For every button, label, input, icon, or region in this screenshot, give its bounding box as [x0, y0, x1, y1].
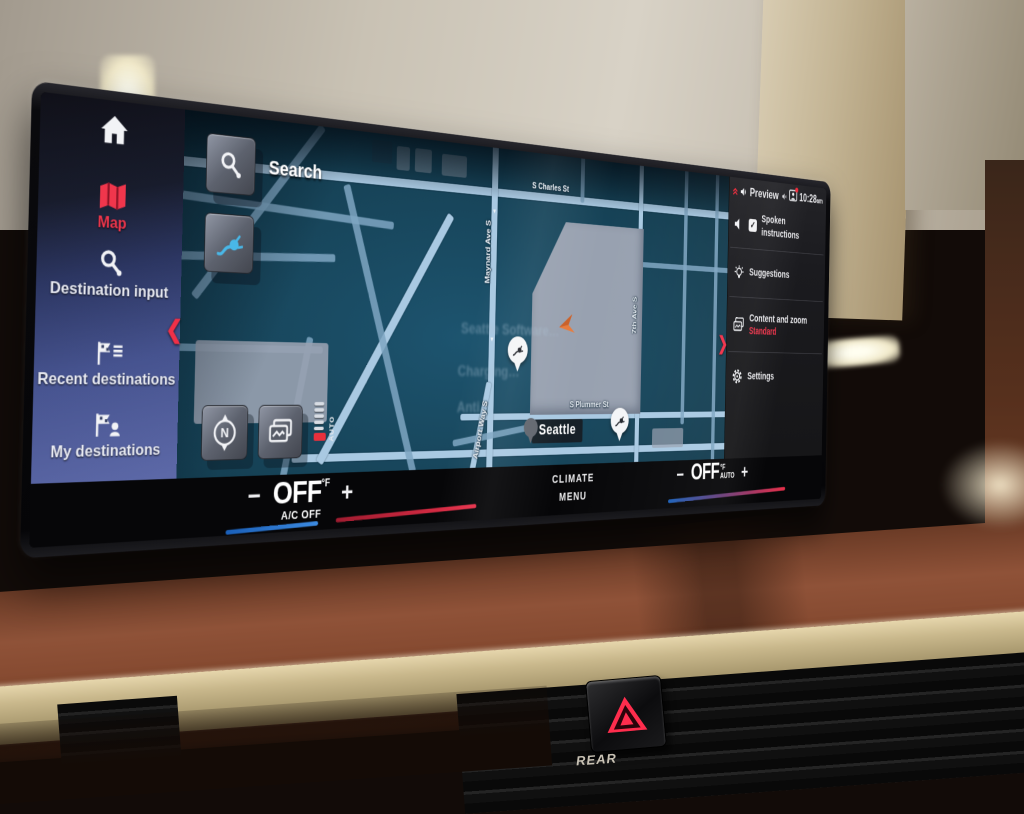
driver-temp-value[interactable]: OFF — [272, 474, 321, 511]
street-label: S Plummer St — [570, 400, 609, 409]
content-zoom-icon — [732, 316, 744, 332]
ev-charging-button[interactable] — [204, 212, 255, 274]
ev-plug-icon — [512, 342, 524, 358]
recent-destinations-icon — [94, 340, 124, 368]
menu-item-label: Spoken instructions — [761, 213, 821, 245]
building-footprint — [652, 428, 683, 448]
map-search-button[interactable] — [206, 133, 257, 197]
passenger-temp-value[interactable]: OFF — [691, 460, 720, 483]
road — [680, 168, 688, 425]
zoom-level-indicator — [314, 433, 326, 441]
temp-gradient-bar — [668, 487, 785, 503]
sidebar-item-home[interactable] — [40, 106, 185, 156]
map-icon — [97, 180, 128, 211]
compass-button[interactable]: N — [201, 405, 249, 461]
sidebar-collapse-chevron[interactable]: ❮ — [165, 317, 183, 342]
hazard-triangle-icon — [602, 692, 649, 736]
city-pin — [523, 418, 539, 445]
sidebar-item-label: Map — [37, 208, 182, 237]
search-icon — [97, 246, 125, 278]
city-marker[interactable]: Seattle — [523, 417, 582, 445]
speaker-active-icon — [741, 185, 748, 199]
driver-temp-minus-button[interactable]: − — [240, 479, 269, 515]
search-icon — [218, 148, 245, 182]
status-title: Preview — [750, 185, 779, 202]
passenger-temp-plus-button[interactable]: + — [736, 459, 753, 484]
ac-off-label[interactable]: A/C OFF — [272, 507, 329, 523]
ev-plug-icon — [215, 226, 243, 261]
clock: 10:28am — [799, 192, 823, 207]
building-footprint — [442, 154, 467, 178]
passenger-temp-control: − OFF °F AUTO + — [671, 458, 793, 488]
speaker-muted-icon — [782, 191, 787, 201]
sos-indicator — [789, 189, 798, 206]
driver-temp-unit: °F — [321, 477, 330, 490]
oneway-arrow: ▼ — [492, 207, 497, 215]
update-arrows-icon — [732, 184, 738, 198]
sidebar-item-label: My destinations — [31, 440, 177, 462]
menu-item-label: Settings — [747, 370, 774, 383]
lightbulb-icon — [733, 263, 744, 281]
building-footprint — [530, 219, 644, 415]
speaker-icon — [734, 216, 744, 231]
gear-icon — [731, 368, 742, 385]
compass-north-label: N — [220, 425, 229, 441]
building-footprint — [415, 148, 432, 173]
sidebar-item-my-destinations[interactable]: My destinations — [31, 411, 178, 462]
sidebar-item-map[interactable]: Map — [37, 175, 183, 237]
city-label: Seattle — [532, 419, 583, 444]
my-destinations-icon — [92, 411, 122, 438]
spoken-instructions-checkbox[interactable] — [749, 218, 757, 231]
light-reflection — [940, 440, 1024, 530]
menu-item-suggestions[interactable]: Suggestions — [727, 247, 825, 301]
rear-vent-label: REAR — [576, 751, 618, 769]
building-footprint — [396, 146, 410, 171]
zoom-auto-label: AUTO — [328, 416, 336, 442]
menu-item-label: Content and zoom — [749, 312, 807, 326]
street-label: 7th Ave S — [631, 297, 638, 334]
driver-temp-plus-button[interactable]: + — [334, 475, 361, 509]
pin-tip — [513, 360, 521, 371]
map-layers-button[interactable] — [258, 405, 303, 460]
map-layers-icon — [267, 417, 294, 446]
ev-charging-pin[interactable] — [609, 408, 630, 446]
hazard-light-button[interactable] — [585, 675, 667, 753]
road — [176, 251, 335, 262]
sidebar-item-destination-input[interactable]: Destination input — [36, 243, 182, 303]
menu-item-value: Standard — [749, 325, 776, 337]
building-footprint — [372, 140, 393, 165]
sidebar-item-label: Destination input — [36, 277, 181, 302]
vehicle-position-icon — [557, 313, 576, 339]
sidebar-item-label: Recent destinations — [33, 369, 179, 388]
panel-expand-chevron[interactable]: ❯ — [717, 334, 728, 353]
ev-plug-icon — [614, 413, 625, 428]
zoom-scale[interactable]: AUTO — [313, 399, 336, 466]
ev-charging-pin[interactable] — [506, 336, 529, 376]
climate-menu-button[interactable]: CLIMATE MENU — [530, 469, 614, 508]
menu-item-label: Suggestions — [749, 266, 789, 282]
driver-temp-control: − OFF°F A/C OFF + — [239, 473, 416, 525]
home-icon — [100, 113, 130, 147]
notification-dot — [795, 187, 798, 192]
passenger-temp-mode[interactable]: AUTO — [720, 471, 735, 480]
map-canvas[interactable]: ▼ ▼ Seattle Software… Charging… Anti… S … — [176, 110, 729, 479]
pin-tip — [616, 431, 624, 442]
menu-item-settings[interactable]: Settings — [726, 352, 824, 395]
road — [580, 155, 585, 203]
sidebar-item-recent-destinations[interactable]: Recent destinations — [33, 338, 179, 388]
menu-item-content-zoom[interactable]: Content and zoom Standard — [726, 296, 824, 353]
passenger-temp-minus-button[interactable]: − — [671, 462, 689, 488]
settings-panel: Preview 10:28am — [724, 177, 826, 459]
nav-sidebar: Map Destination input — [31, 92, 185, 484]
search-button-label[interactable]: Search — [269, 156, 323, 185]
street-label: Maynard Ave S — [484, 220, 493, 284]
